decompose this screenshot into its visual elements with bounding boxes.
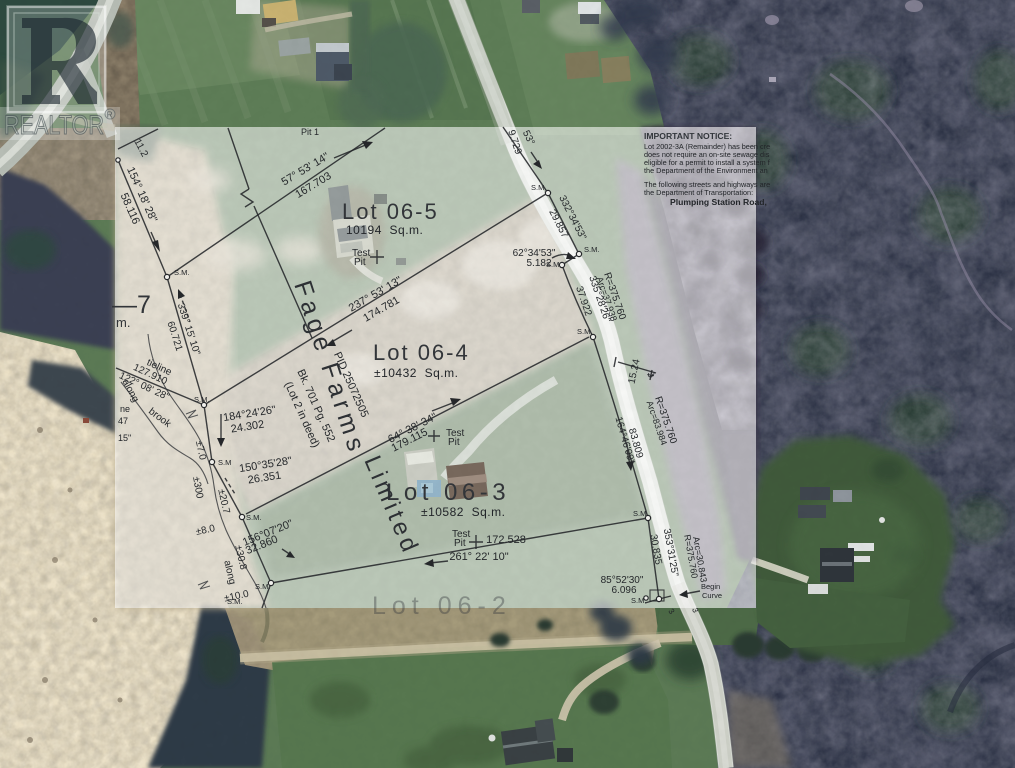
svg-text:REALTOR: REALTOR xyxy=(4,110,104,140)
svg-text:R: R xyxy=(107,111,113,120)
